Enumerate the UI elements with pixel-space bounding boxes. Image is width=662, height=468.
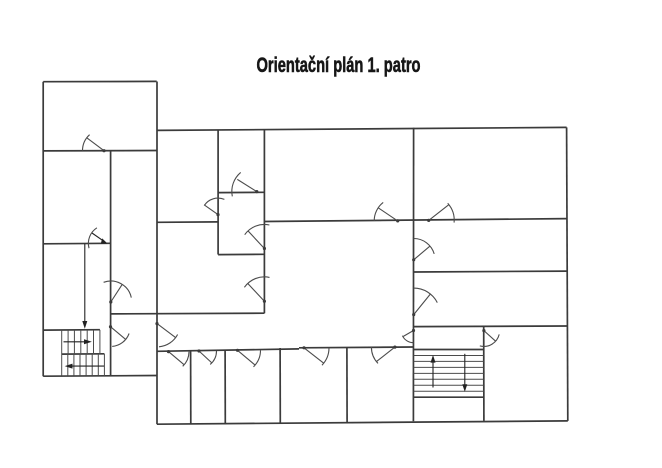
svg-text:Orientační plán 1. patro: Orientační plán 1. patro [256, 53, 420, 76]
